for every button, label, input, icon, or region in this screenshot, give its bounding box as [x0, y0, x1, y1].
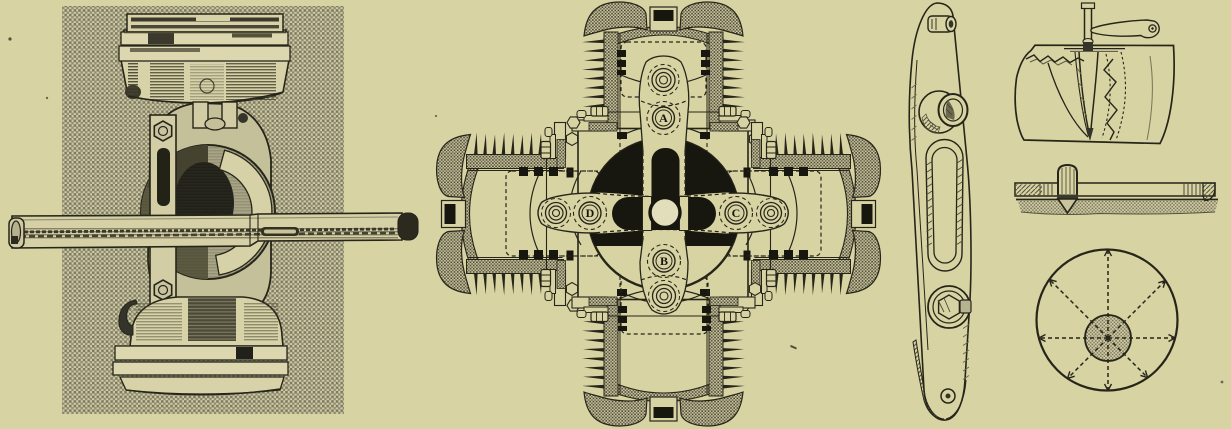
svg-text:B: B [660, 254, 668, 268]
svg-text:C: C [732, 206, 741, 220]
svg-text:A: A [659, 111, 668, 125]
svg-text:D: D [586, 206, 595, 220]
